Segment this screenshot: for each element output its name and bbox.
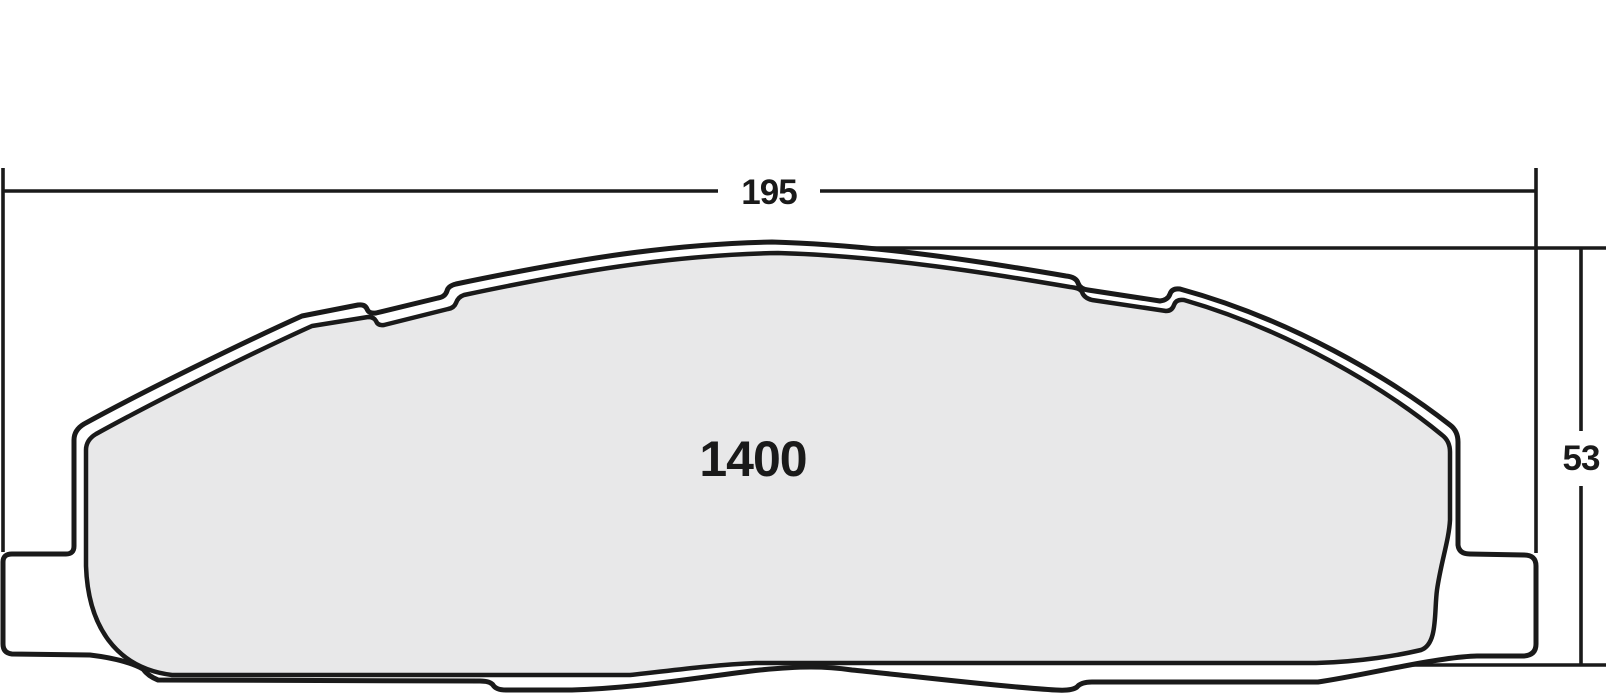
height-dimension-label: 53 bbox=[1563, 439, 1600, 478]
part-number-label: 1400 bbox=[699, 431, 806, 487]
width-dimension-label: 195 bbox=[741, 173, 797, 212]
brake-pad-drawing: 195 53 1400 bbox=[0, 0, 1606, 694]
brake-pad-diagram: 195 53 1400 bbox=[0, 0, 1606, 694]
